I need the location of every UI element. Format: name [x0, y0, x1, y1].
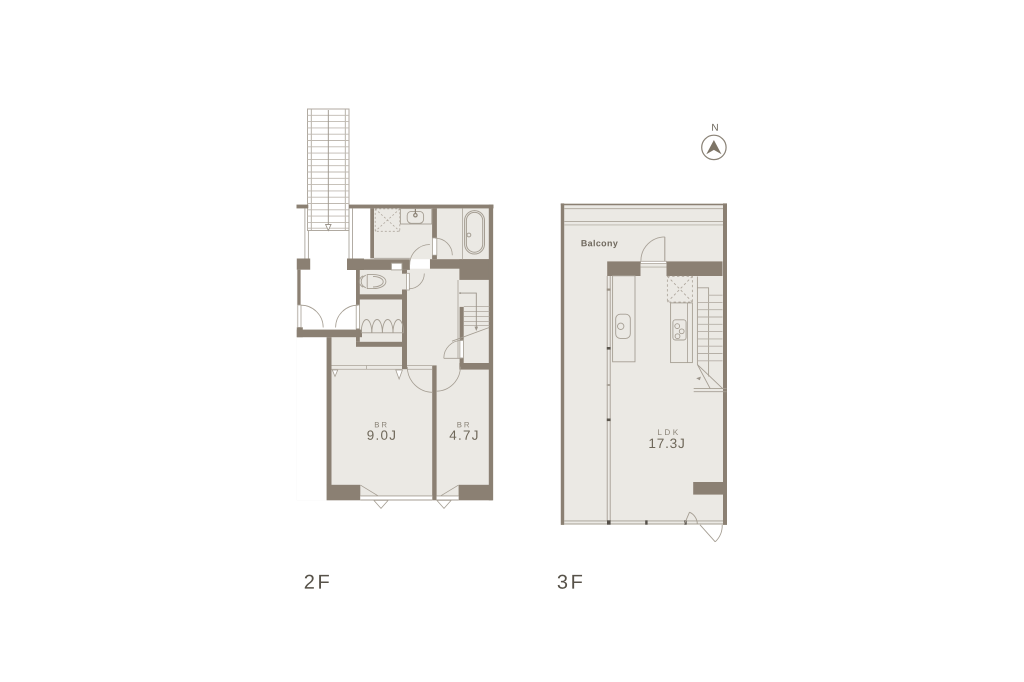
svg-text:4.7J: 4.7J: [449, 428, 480, 443]
svg-text:9.0J: 9.0J: [367, 428, 398, 443]
svg-text:N: N: [711, 123, 718, 134]
svg-text:3F: 3F: [557, 572, 586, 594]
svg-text:17.3J: 17.3J: [648, 436, 685, 451]
svg-text:2F: 2F: [304, 572, 333, 594]
svg-text:Balcony: Balcony: [581, 238, 618, 248]
